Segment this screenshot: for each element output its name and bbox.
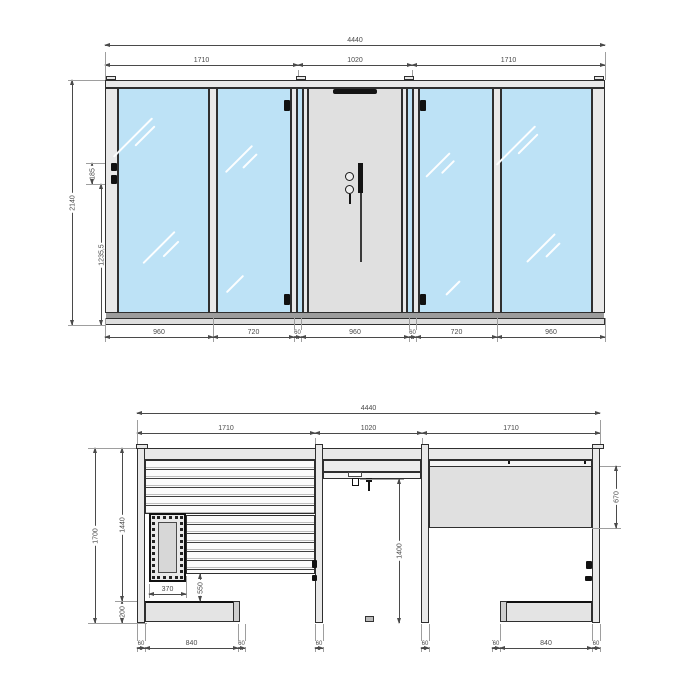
- glass-panel-left-outer: [118, 88, 209, 313]
- dim-bench-segment: 60: [592, 648, 600, 649]
- technical-drawing-canvas: 4440 1710 1020 1710 2140 185 1235,5: [0, 0, 700, 700]
- shower-head-icon: [368, 482, 370, 491]
- rail-tab: [296, 76, 306, 80]
- door-latch-icon: [585, 576, 592, 581]
- dim-panel-width: 960: [301, 337, 409, 338]
- dim-panel-width: 720: [416, 337, 497, 338]
- sauna-foot-bench: [145, 601, 240, 622]
- shower-valve-icon: [352, 478, 359, 486]
- front-base-sill: [105, 318, 605, 325]
- extension-line: [88, 448, 137, 449]
- mixer-lever: [349, 194, 351, 204]
- door-hinge-icon: [312, 575, 317, 581]
- shower-wall-post-left: [315, 444, 323, 623]
- mixer-knob-icon: [345, 172, 354, 181]
- rail-tab: [594, 76, 604, 80]
- header-notch: [348, 472, 362, 477]
- dim-wall-post-width: 60: [315, 648, 323, 649]
- door-vent-slot: [333, 89, 377, 94]
- dim-front-overall-height: 2140: [72, 80, 73, 325]
- heater-body: [158, 522, 177, 573]
- mixer-knob-icon: [345, 185, 354, 194]
- dim-front-section-center: 1020: [298, 65, 412, 66]
- dim-side-section-center: 1020: [315, 433, 422, 434]
- shower-column-rod: [360, 193, 362, 262]
- floor-drain-icon: [365, 616, 374, 622]
- extension-line: [68, 80, 105, 81]
- center-door-panel: [308, 88, 402, 313]
- wall-bracket-icon: [111, 163, 117, 171]
- dim-plinth-height: 200: [122, 601, 123, 623]
- door-hinge-icon: [312, 560, 317, 568]
- dim-bench-height: 550: [200, 574, 201, 601]
- sauna-heater: [149, 513, 186, 582]
- dim-panel-width: 720: [213, 337, 294, 338]
- dim-front-section-right: 1710: [412, 65, 605, 66]
- door-hinge-icon: [284, 294, 290, 305]
- door-handle-icon: [586, 561, 592, 569]
- door-hinge-icon: [284, 100, 290, 111]
- dim-bench-segment: 60: [238, 648, 245, 649]
- shower-bench: [500, 601, 592, 622]
- dim-front-section-left: 1710: [105, 65, 298, 66]
- mullion: [493, 88, 501, 313]
- side-right-wall-post: [592, 448, 600, 623]
- shower-column-bar: [358, 163, 363, 193]
- shower-header-strip: [323, 472, 421, 479]
- sauna-backrest-slats: [145, 460, 315, 514]
- dim-front-hinge-offset: 185: [92, 163, 93, 184]
- dim-bench-segment: 840: [145, 648, 238, 649]
- mullion: [209, 88, 217, 313]
- rail-tab: [404, 76, 414, 80]
- rail-tab: [106, 76, 116, 80]
- dim-bench-segment: 840: [500, 648, 592, 649]
- bench-end-post: [500, 601, 507, 622]
- fixing-dot: [584, 461, 586, 464]
- extension-line: [88, 623, 147, 624]
- dim-transom-height: 670: [616, 466, 617, 528]
- dim-opening-height: 1400: [399, 479, 400, 623]
- door-hinge-icon: [420, 294, 426, 305]
- side-top-rail: [137, 448, 600, 460]
- dim-side-section-left: 1710: [137, 433, 315, 434]
- dim-wall-post-width: 60: [421, 648, 429, 649]
- front-right-post: [592, 88, 605, 313]
- glass-panel-right-outer: [501, 88, 592, 313]
- fixing-dot: [508, 461, 510, 464]
- dim-front-overall-width: 4440: [105, 45, 605, 46]
- door-hinge-icon: [420, 100, 426, 111]
- dim-side-overall-width: 4440: [137, 413, 600, 414]
- bench-end-post: [233, 601, 240, 622]
- dim-front-handle-height: 1235,5: [101, 184, 102, 325]
- extension-line: [605, 52, 606, 80]
- dim-side-section-right: 1710: [422, 433, 600, 434]
- glass-door-right: [419, 88, 493, 313]
- dim-interior-height: 1440: [122, 448, 123, 601]
- dim-heater-width: 370: [149, 594, 186, 595]
- side-left-wall-post: [137, 448, 145, 623]
- front-top-rail: [105, 80, 605, 88]
- front-left-post: [105, 88, 118, 313]
- sauna-upper-bench-slats: [186, 515, 315, 574]
- transom-panel: [429, 466, 592, 528]
- extension-line: [68, 325, 105, 326]
- dim-side-overall-height: 1700: [95, 448, 96, 623]
- glass-door-left: [217, 88, 291, 313]
- dim-panel-width: 960: [497, 337, 605, 338]
- wall-bracket-icon: [111, 175, 117, 184]
- shower-wall-post-right: [421, 444, 429, 623]
- shower-header-beam: [323, 460, 421, 472]
- dim-panel-width: 960: [105, 337, 213, 338]
